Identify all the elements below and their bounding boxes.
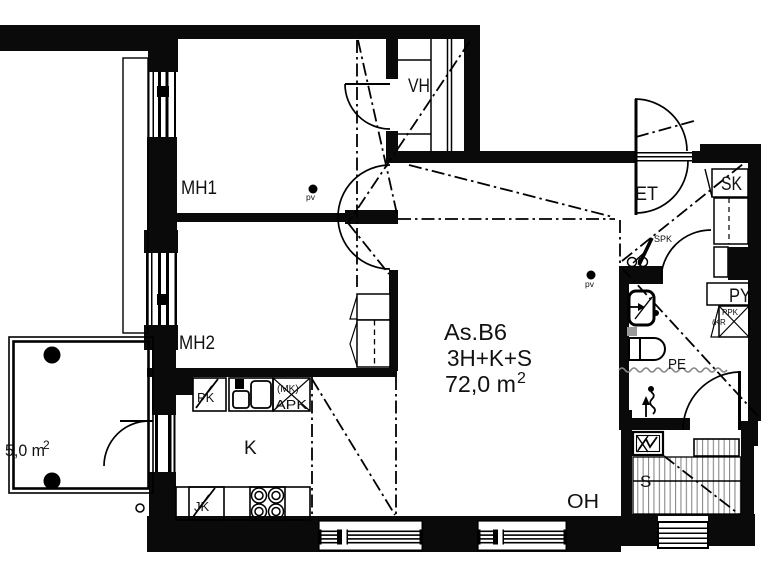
- svg-text:(MK): (MK): [277, 384, 299, 395]
- svg-text:PY: PY: [729, 286, 751, 307]
- svg-text:2: 2: [517, 370, 526, 387]
- svg-text:MH1: MH1: [181, 178, 217, 199]
- svg-text:5,0 m: 5,0 m: [5, 441, 45, 460]
- svg-text:2: 2: [43, 438, 50, 452]
- svg-text:PPK: PPK: [722, 308, 739, 317]
- svg-text:PK: PK: [197, 390, 215, 405]
- svg-text:pv: pv: [585, 279, 595, 289]
- svg-text:SPK: SPK: [654, 234, 672, 244]
- svg-text:ET: ET: [635, 184, 658, 205]
- svg-text:72,0 m: 72,0 m: [445, 371, 516, 397]
- svg-text:OH: OH: [567, 491, 599, 513]
- svg-text:As.B6: As.B6: [444, 319, 507, 345]
- svg-text:(KR: (KR: [712, 318, 726, 327]
- svg-text:MH2: MH2: [179, 333, 215, 354]
- svg-text:PE: PE: [668, 356, 686, 373]
- svg-text:K: K: [244, 438, 257, 459]
- svg-text:VH: VH: [408, 76, 430, 97]
- svg-text:APK: APK: [275, 397, 307, 412]
- svg-text:JK: JK: [194, 499, 210, 514]
- svg-text:3H+K+S: 3H+K+S: [447, 345, 532, 371]
- svg-text:pv: pv: [306, 192, 316, 202]
- svg-text:S: S: [640, 472, 651, 491]
- svg-text:SK: SK: [721, 174, 742, 195]
